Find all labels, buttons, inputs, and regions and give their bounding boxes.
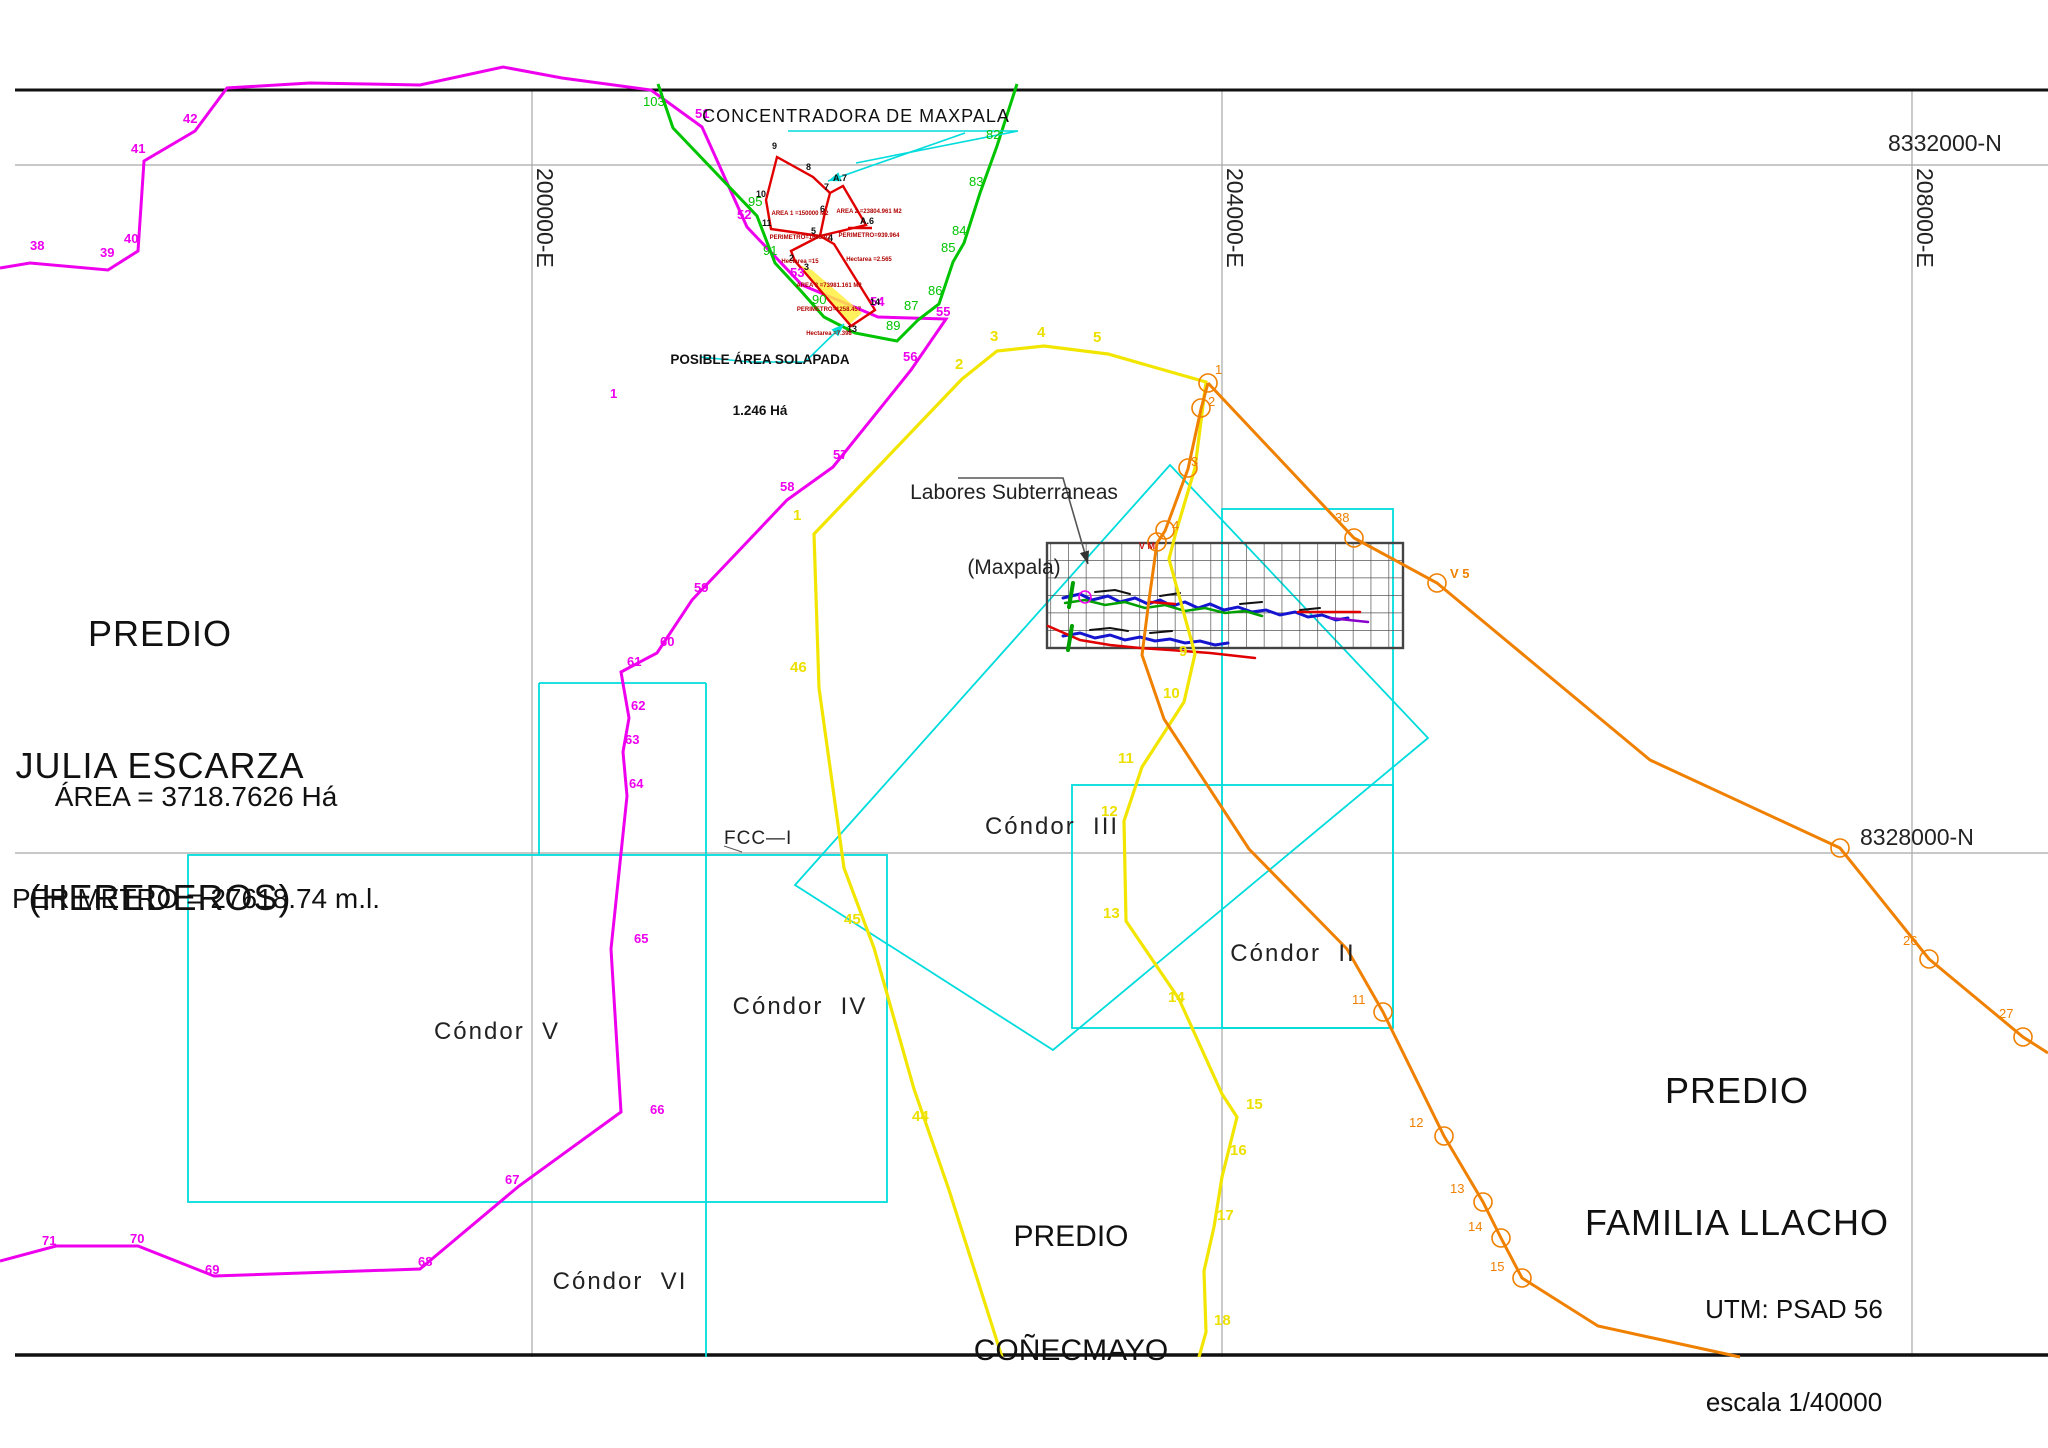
vertex-label: 14	[1468, 1219, 1482, 1234]
vertex-label: 40	[124, 231, 138, 246]
vertex-label: 10	[756, 189, 766, 199]
vertex-label: 13	[1450, 1181, 1464, 1196]
vertex-label: 3	[990, 328, 998, 345]
vertex-label: 1	[1215, 362, 1222, 377]
vertex-label: 39	[100, 245, 114, 260]
projection-note: UTM: PSAD 56 escala 1/40000	[1705, 1232, 1883, 1448]
vertex-label: 83	[969, 174, 983, 189]
vertex-label: 46	[790, 659, 807, 676]
vertex-label: 1	[793, 507, 801, 524]
vertex-label: 2	[955, 356, 963, 373]
vertex-label: 15	[1246, 1096, 1263, 1113]
vertex-label: 7	[824, 182, 829, 192]
vertex-label: 2	[1208, 394, 1215, 409]
vertex-label: 64	[629, 776, 644, 791]
vertex-label: 66	[650, 1102, 664, 1117]
vertex-label: 87	[904, 298, 918, 313]
vertex-label: 63	[625, 732, 639, 747]
vertex-label: 52	[737, 207, 751, 222]
concession-condor-vi: Cóndor VI	[553, 1268, 688, 1296]
vertex-label: 44	[912, 1108, 929, 1125]
concession-condor-v: Cóndor V	[434, 1018, 560, 1046]
vertex-label: 67	[505, 1172, 519, 1187]
vertex-label: 86	[928, 283, 942, 298]
vertex-label: 12	[1409, 1115, 1423, 1130]
grid-label-8328000: 8328000-N	[1860, 824, 1974, 851]
vertex-label: 71	[42, 1233, 56, 1248]
vertex-label: 13	[1103, 905, 1120, 922]
vertex-label: 15	[1490, 1259, 1504, 1274]
vertex-label: 8	[806, 162, 811, 172]
vertex-label: 103	[643, 94, 665, 109]
vertex-label: 38	[30, 238, 44, 253]
vertex-label: 27	[1999, 1006, 2013, 1021]
grid-label-8332000: 8332000-N	[1888, 130, 2002, 157]
vertex-label: 82	[986, 127, 1000, 142]
vertex-label: A.7	[833, 173, 847, 183]
vertex-label: 55	[936, 304, 950, 319]
concentradora-title: CONCENTRADORA DE MAXPALA	[702, 106, 1010, 127]
vertex-label: 14	[870, 297, 880, 307]
vm-label: V M	[1139, 541, 1155, 551]
vertex-label: 11	[1352, 992, 1366, 1007]
predio-conecmayo-block: PREDIO COÑECMAYO AREA = 1348.75 Há PERIM…	[878, 1142, 1264, 1448]
vertex-label: 26	[1903, 933, 1917, 948]
grid-label-200000: 200000-E	[531, 168, 558, 268]
vertex-label: 89	[886, 318, 900, 333]
vertex-label: 9	[1179, 643, 1187, 660]
concession-fcc-i: FCC—I	[724, 828, 792, 850]
vertex-label: 70	[130, 1231, 144, 1246]
vertex-label: 61	[627, 654, 641, 669]
concession-condor-iii: Cóndor III	[985, 813, 1119, 841]
vertex-label: 3	[1191, 454, 1198, 469]
vertex-label: 69	[205, 1262, 219, 1277]
predio-julia-metrics: ÁREA = 3718.7626 Há PERIMETRO = 27618.74…	[12, 712, 380, 984]
vertex-label: 56	[903, 349, 917, 364]
grid-label-208000: 208000-E	[1911, 168, 1938, 268]
vertex-label: 4	[1172, 518, 1179, 533]
vertex-label: 62	[631, 698, 645, 713]
vertex-label: 4	[1037, 324, 1046, 341]
vertex-label: 14	[1168, 989, 1185, 1006]
concession-condor-ii: Cóndor II	[1230, 940, 1355, 968]
vertex-label: 59	[694, 580, 708, 595]
vertex-label: 42	[183, 111, 197, 126]
vertex-label: 85	[941, 240, 955, 255]
vertex-label: 60	[660, 634, 674, 649]
grid-label-204000: 204000-E	[1221, 168, 1248, 268]
vertex-label: 45	[844, 911, 861, 928]
vertex-label: 11	[1118, 750, 1134, 767]
cadastral-map: 3839404142515253545556575859606162636465…	[0, 0, 2048, 1448]
vertex-label: 5	[1093, 329, 1101, 346]
vertex-label: 65	[634, 931, 648, 946]
vertex-label: 38	[1335, 510, 1349, 525]
vertex-label: 10	[1163, 685, 1180, 702]
vertex-label: 58	[780, 479, 794, 494]
vertex-label: 68	[418, 1254, 432, 1269]
vertex-label: 41	[131, 141, 145, 156]
labores-note: Labores Subterraneas (Maxpala)	[910, 430, 1118, 630]
solapada-note: POSIBLE ÁREA SOLAPADA 1.246 Há	[670, 317, 849, 453]
concession-condor-iv: Cóndor IV	[733, 993, 868, 1021]
vertex-label: 1	[610, 386, 617, 401]
vertex-label: 9	[772, 141, 777, 151]
vertex-label: 84	[952, 223, 966, 238]
v5-label: V 5	[1450, 566, 1470, 581]
